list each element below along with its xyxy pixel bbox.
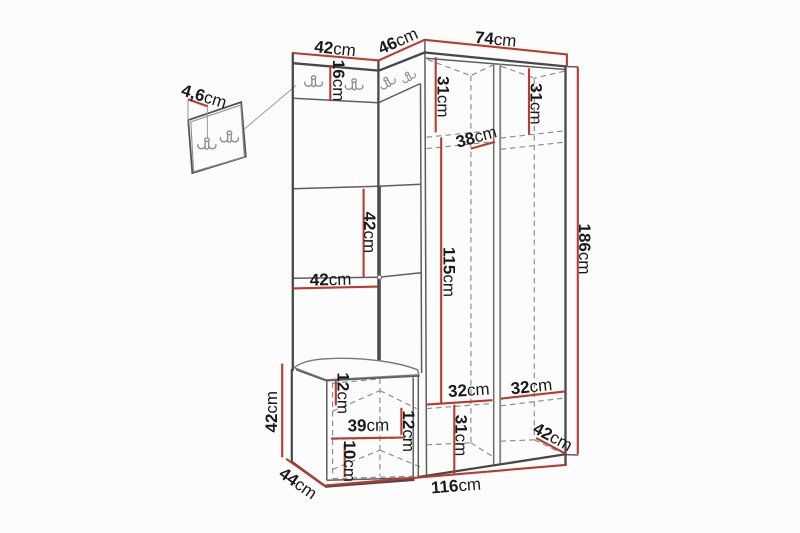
- svg-text:116cm: 116cm: [430, 474, 481, 497]
- svg-text:186cm: 186cm: [575, 223, 594, 274]
- svg-text:16cm: 16cm: [329, 60, 348, 102]
- svg-text:31cm: 31cm: [452, 415, 471, 457]
- svg-text:31cm: 31cm: [527, 83, 546, 125]
- svg-text:42cm: 42cm: [361, 212, 380, 254]
- svg-text:74cm: 74cm: [474, 27, 517, 50]
- svg-text:32cm: 32cm: [447, 379, 490, 401]
- svg-text:31cm: 31cm: [434, 76, 453, 118]
- svg-text:12cm: 12cm: [400, 410, 419, 452]
- svg-text:10cm: 10cm: [341, 440, 360, 482]
- svg-text:42cm: 42cm: [262, 391, 281, 433]
- svg-text:42cm: 42cm: [310, 269, 352, 289]
- svg-text:12cm: 12cm: [334, 372, 353, 414]
- svg-text:115cm: 115cm: [440, 247, 459, 297]
- svg-text:39cm: 39cm: [347, 415, 389, 435]
